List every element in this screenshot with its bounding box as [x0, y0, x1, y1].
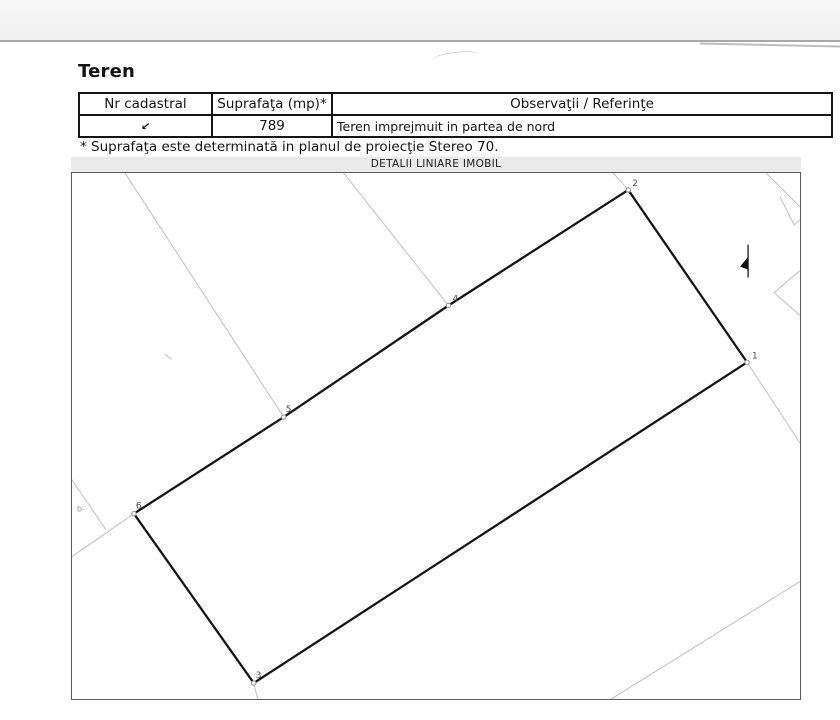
stereo70-footnote: * Suprafaţa este determinată in planul d…: [80, 139, 499, 155]
neighbor-boundary-line: [125, 173, 284, 417]
cell-observatii: Teren imprejmuit in partea de nord: [332, 115, 832, 137]
header-suprafata: Suprafaţa (mp)*: [212, 93, 332, 115]
vertex-marker: [282, 415, 286, 419]
neighbor-boundary-line: [165, 354, 172, 359]
vertex-marker: [745, 360, 749, 364]
vertex-marker: [626, 188, 630, 192]
neighbor-boundary-line: [780, 197, 800, 225]
neighbor-boundary-line: [611, 581, 800, 699]
neighbor-boundary-line: [747, 362, 800, 443]
cell-suprafata: 789: [212, 115, 332, 137]
vertex-marker: [446, 303, 450, 307]
header-nr-cadastral: Nr cadastral: [79, 93, 212, 115]
vertex-label: 4: [452, 295, 458, 305]
section-title-teren: Teren: [78, 61, 135, 82]
scan-artifact-squiggle: [432, 49, 479, 65]
neighbor-boundary-line: [72, 514, 134, 557]
plan-title: DETALII LINIARE IMOBIL: [71, 157, 801, 172]
north-arrow-icon: [740, 257, 748, 270]
vertex-label: 5: [286, 405, 292, 415]
vertex-label: 6: [136, 502, 142, 512]
cadastral-plan: 123456b-: [71, 172, 801, 700]
header-observatii: Observaţii / Referinţe: [332, 93, 832, 115]
vertex-marker: [252, 681, 256, 685]
vertex-label: 1: [752, 351, 758, 361]
parcel-boundary: [134, 190, 747, 683]
neighbor-boundary-line: [613, 173, 628, 190]
scan-artifact-top-band: [0, 0, 840, 42]
cadastral-document-page: Teren Nr cadastral Suprafaţa (mp)* Obser…: [0, 0, 840, 720]
vertex-label: 3: [256, 671, 262, 681]
redacted-cadastral-mark: ↙: [140, 120, 151, 134]
vertex-label: 2: [632, 179, 638, 189]
land-table-header-row: Nr cadastral Suprafaţa (mp)* Observaţii …: [79, 93, 832, 115]
cadastral-plan-svg: 123456b-: [72, 173, 800, 699]
neighbor-boundary-line: [344, 173, 449, 305]
cell-nr-cadastral: ↙: [79, 115, 212, 137]
neighbor-boundary-line: [774, 271, 800, 316]
illegible-annotation: b-: [77, 505, 85, 514]
land-table: Nr cadastral Suprafaţa (mp)* Observaţii …: [78, 92, 833, 138]
vertex-marker: [132, 512, 136, 516]
land-table-data-row: ↙ 789 Teren imprejmuit in partea de nord: [79, 115, 832, 137]
